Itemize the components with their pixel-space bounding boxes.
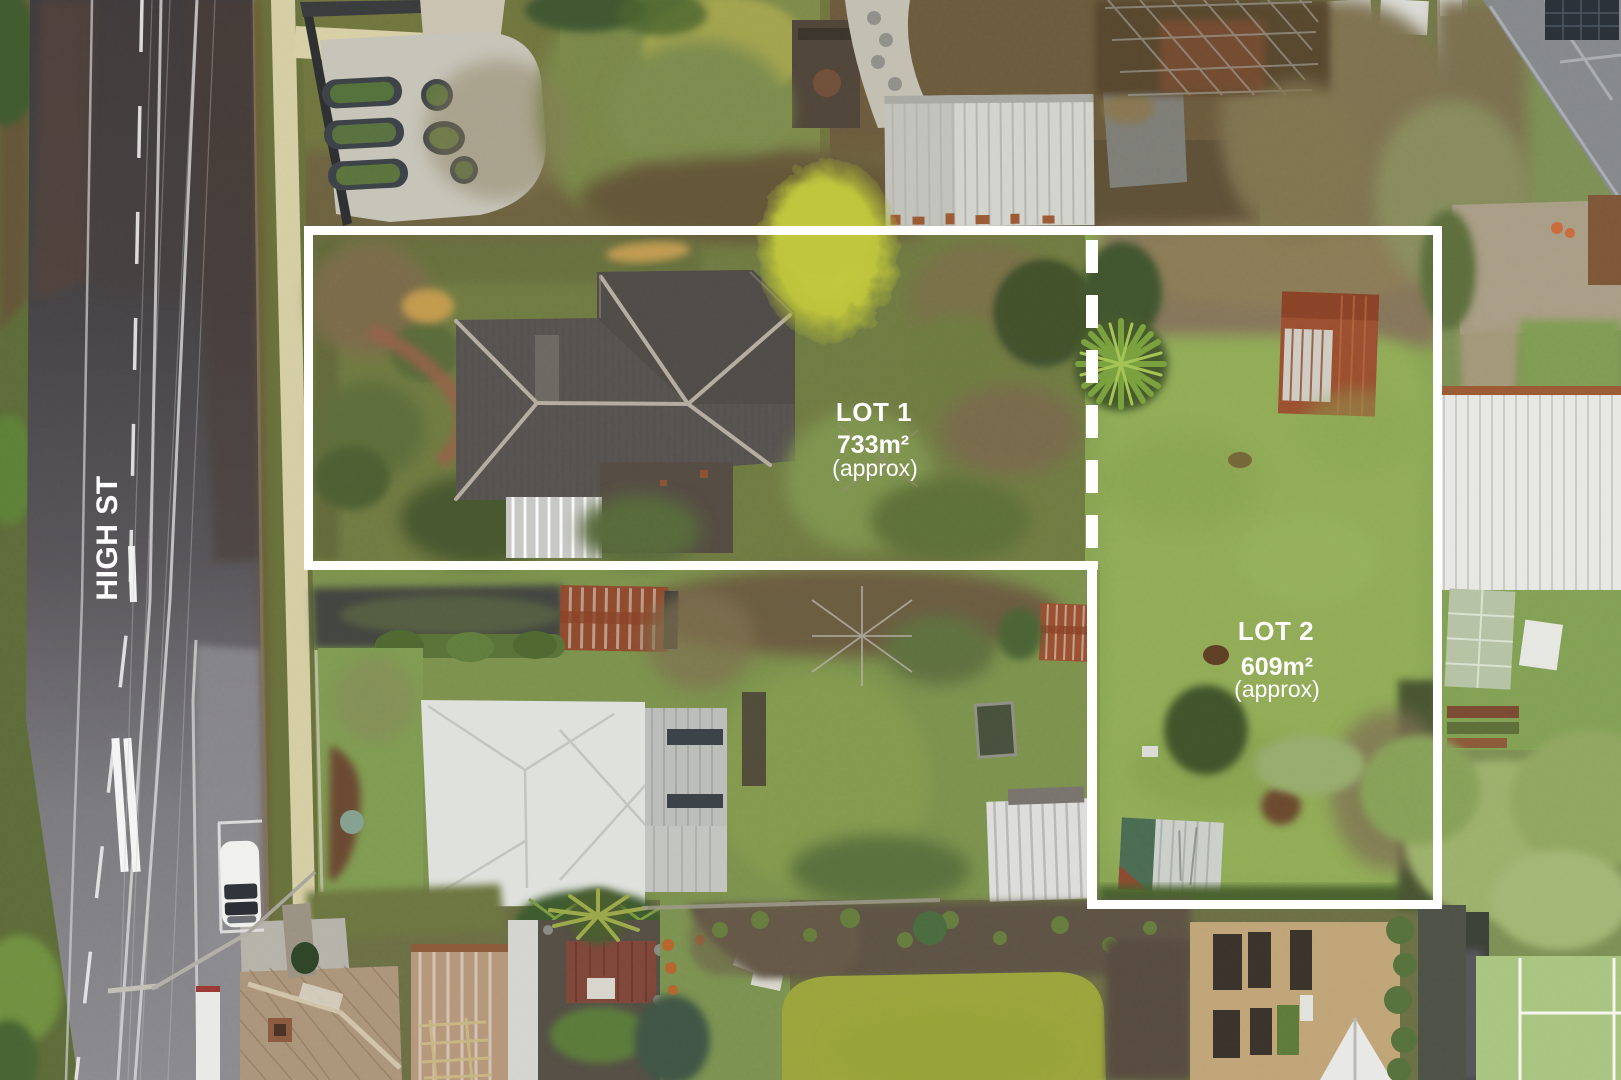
svg-text:LOT 2: LOT 2 <box>1238 616 1314 646</box>
svg-text:(approx): (approx) <box>1234 676 1320 702</box>
svg-text:HIGH ST: HIGH ST <box>91 475 124 600</box>
svg-text:LOT 1: LOT 1 <box>836 397 912 427</box>
svg-text:(approx): (approx) <box>832 455 918 481</box>
